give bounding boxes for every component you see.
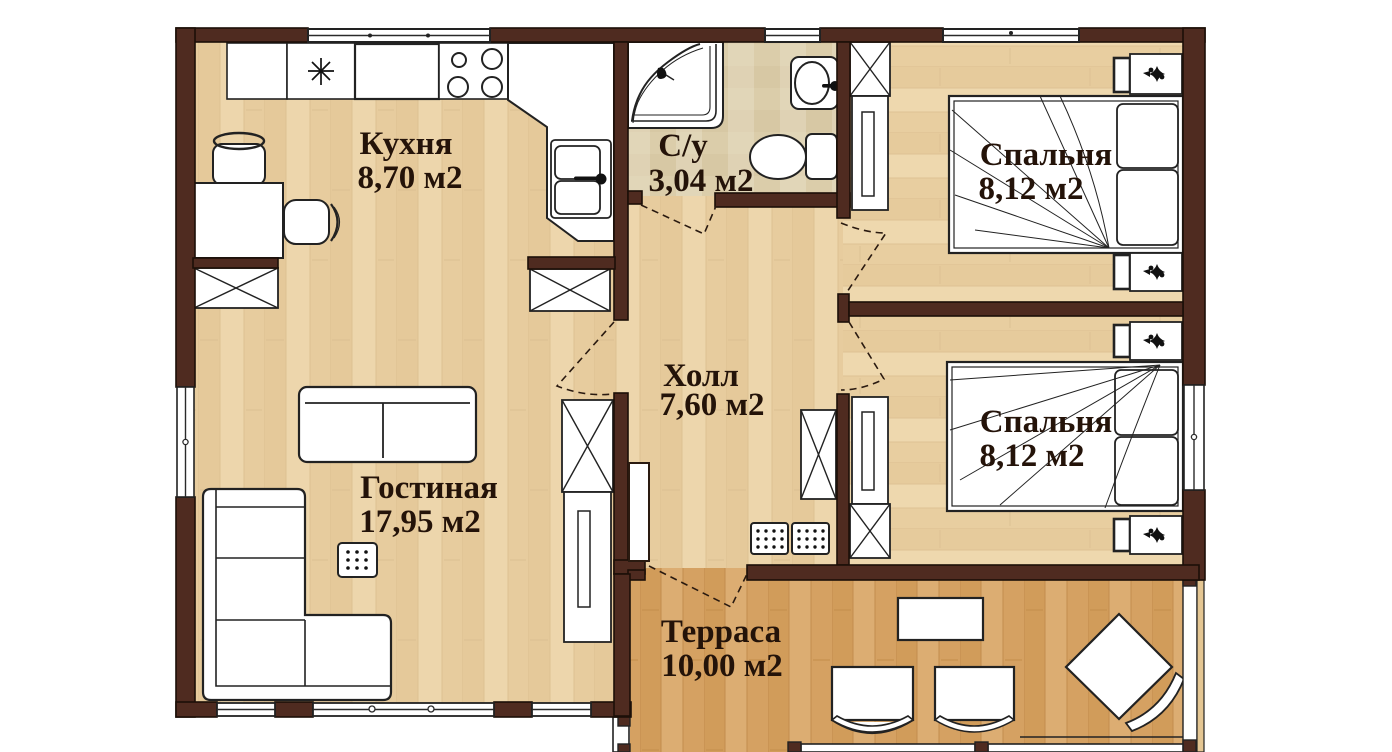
svg-text:Кухня: Кухня bbox=[360, 126, 453, 162]
svg-text:Спальня: Спальня bbox=[980, 404, 1112, 440]
svg-text:7,60 м2: 7,60 м2 bbox=[660, 387, 765, 423]
svg-text:3,04 м2: 3,04 м2 bbox=[649, 163, 754, 199]
svg-text:С/у: С/у bbox=[658, 128, 708, 164]
svg-text:8,70 м2: 8,70 м2 bbox=[358, 160, 463, 196]
svg-text:Гостиная: Гостиная bbox=[360, 470, 498, 506]
svg-text:10,00 м2: 10,00 м2 bbox=[661, 648, 782, 684]
svg-text:8,12 м2: 8,12 м2 bbox=[979, 171, 1084, 207]
svg-text:Терраса: Терраса bbox=[661, 614, 781, 650]
svg-text:Спальня: Спальня bbox=[980, 137, 1112, 173]
svg-text:8,12 м2: 8,12 м2 bbox=[980, 438, 1085, 474]
svg-text:17,95 м2: 17,95 м2 bbox=[359, 504, 480, 540]
